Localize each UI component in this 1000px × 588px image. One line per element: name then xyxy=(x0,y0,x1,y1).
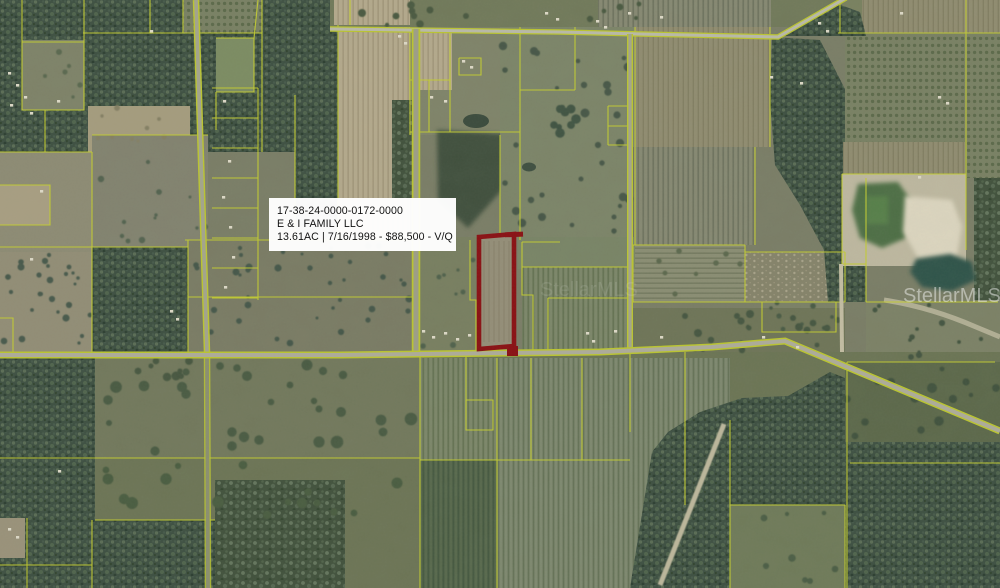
svg-text:StellarMLS: StellarMLS xyxy=(540,279,638,301)
svg-text:StellarMLS: StellarMLS xyxy=(903,285,1000,307)
